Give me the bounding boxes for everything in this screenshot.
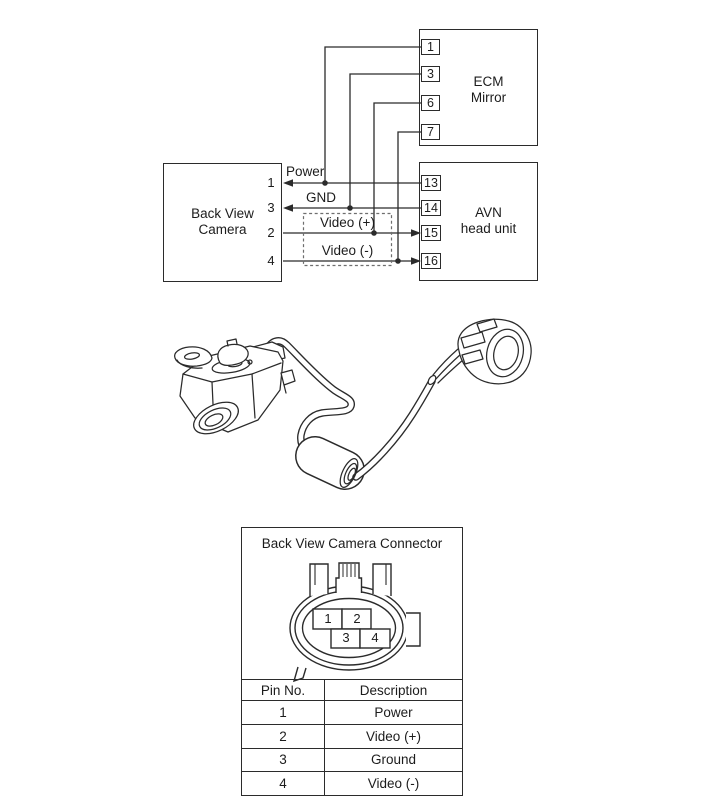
junction-dot: [395, 258, 401, 264]
camera-pin-1: 1: [262, 175, 280, 191]
description-cell: Video (+): [325, 725, 462, 748]
table-row: 2 Video (+): [242, 724, 462, 748]
pin-no-cell: 2: [242, 725, 325, 748]
junction-dot: [322, 180, 328, 186]
ecm-pin-3: 3: [421, 66, 440, 82]
camera-illustration: [175, 319, 532, 490]
avn-pin-13-label: 13: [424, 176, 438, 190]
connector-cavity-pin-1: 1: [318, 611, 338, 627]
junction-dot: [347, 205, 353, 211]
ecm-mirror-label: ECM Mirror: [441, 74, 536, 106]
connector-panel: Back View Camera Connector Pin No. Descr…: [241, 527, 463, 796]
avn-pin-16-label: 16: [424, 254, 438, 268]
ecm-label-line1: ECM: [441, 74, 536, 90]
pin-no-cell: 4: [242, 772, 325, 795]
video-minus-wire-label: Video (-): [303, 244, 392, 258]
wiring-lines: [283, 47, 422, 266]
ecm-pin-7: 7: [421, 124, 440, 140]
gnd-wire-label: GND: [306, 191, 336, 205]
power-wire-label: Power: [286, 165, 324, 179]
ecm-pin3-feed: [350, 74, 421, 208]
ecm-label-line2: Mirror: [441, 90, 536, 106]
description-header: Description: [325, 680, 462, 700]
table-row: 3 Ground: [242, 748, 462, 772]
ecm-pin7-feed: [398, 132, 421, 261]
description-cell: Video (-): [325, 772, 462, 795]
avn-pin-15-label: 15: [424, 226, 438, 240]
junction-dot: [371, 230, 377, 236]
pin-no-cell: 3: [242, 749, 325, 772]
connector-cavity-pin-2: 2: [347, 611, 367, 627]
ecm-pin1-feed: [325, 47, 421, 183]
camera-pin-3: 3: [262, 200, 280, 216]
arrow-left: [283, 179, 293, 187]
avn-label-line2: head unit: [441, 221, 536, 237]
avn-pin-13: 13: [421, 175, 441, 191]
connector-panel-title: Back View Camera Connector: [242, 536, 462, 551]
ecm-pin-6-label: 6: [427, 96, 434, 110]
ecm-pin-6: 6: [421, 95, 440, 111]
ecm-pin-1-label: 1: [427, 40, 434, 54]
avn-pin-14-label: 14: [424, 201, 438, 215]
connector-cavity-pin-3: 3: [336, 630, 356, 646]
table-row: 4 Video (-): [242, 771, 462, 795]
connector-cavity-pin-4: 4: [365, 630, 385, 646]
avn-pin-16: 16: [421, 253, 441, 269]
table-row: 1 Power: [242, 700, 462, 724]
ecm-pin-3-label: 3: [427, 67, 434, 81]
camera-pin-2: 2: [262, 225, 280, 241]
avn-head-unit-label: AVN head unit: [441, 205, 536, 237]
pin-table: Pin No. Description 1 Power 2 Video (+) …: [242, 679, 462, 795]
avn-pin-14: 14: [421, 200, 441, 216]
description-cell: Ground: [325, 749, 462, 772]
avn-pin-15: 15: [421, 225, 441, 241]
pin-no-header: Pin No.: [242, 680, 325, 700]
arrow-left: [283, 204, 293, 212]
ecm-pin-7-label: 7: [427, 125, 434, 139]
avn-label-line1: AVN: [441, 205, 536, 221]
pin-table-header-row: Pin No. Description: [242, 680, 462, 700]
page: ECM Mirror 1 3 6 7 AVN head unit 13 14 1…: [0, 0, 701, 808]
ecm-pin-1: 1: [421, 39, 440, 55]
video-plus-wire-label: Video (+): [303, 216, 392, 230]
pin-no-cell: 1: [242, 701, 325, 724]
description-cell: Power: [325, 701, 462, 724]
camera-pin-4: 4: [262, 253, 280, 269]
